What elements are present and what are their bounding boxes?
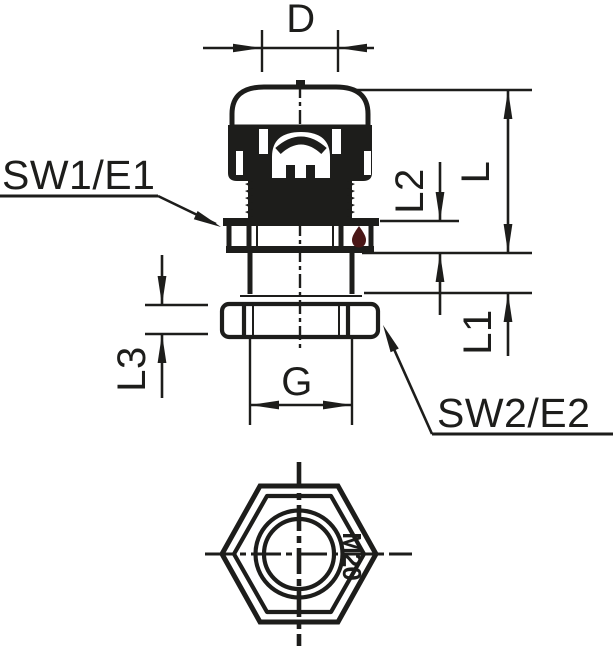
- bottom-view: M20: [205, 462, 412, 646]
- l-label: L: [454, 161, 498, 184]
- seal-edge-slot-right: [364, 151, 371, 175]
- side-view: [222, 80, 379, 352]
- d-arrow-left: [233, 44, 262, 52]
- g-arrow-left: [250, 401, 279, 410]
- l1-label: L1: [456, 309, 500, 355]
- thread-size-marking: M20: [337, 532, 367, 580]
- sw2-leader-arrow: [383, 325, 399, 352]
- sw1-leader-arrow: [194, 211, 221, 227]
- d-arrow-right: [338, 44, 367, 52]
- lamella-finger-left: [286, 165, 295, 178]
- l3-arrow-bottom: [158, 334, 167, 363]
- l3-label: L3: [110, 346, 154, 392]
- l2-label: L2: [388, 168, 432, 214]
- l-arrow-bottom: [504, 224, 513, 253]
- cable-gland-drawing: D SW1/E1 L2 L L1 L3 G SW2/E2 M20: [0, 0, 613, 650]
- seal-slot-left: [259, 129, 268, 154]
- d-label: D: [286, 0, 315, 41]
- g-label: G: [281, 360, 313, 404]
- sw1-label: SW1/E1: [2, 152, 155, 198]
- technical-drawing-canvas: D SW1/E1 L2 L L1 L3 G SW2/E2 M20: [0, 0, 613, 650]
- sw2-label: SW2/E2: [437, 390, 590, 436]
- l2-arrow-top: [436, 192, 445, 221]
- l2-arrow-bottom: [436, 253, 445, 282]
- sw2-leader-line: [389, 338, 432, 434]
- lamella-finger-right: [306, 165, 315, 178]
- seal-slot-right: [332, 129, 341, 154]
- l3-arrow-top: [158, 276, 167, 305]
- upper-thread: [248, 181, 352, 222]
- l-arrow-top: [504, 90, 513, 119]
- l1-arrow: [504, 293, 513, 322]
- g-arrow-right: [323, 401, 352, 410]
- seal-edge-slot-left: [236, 151, 243, 175]
